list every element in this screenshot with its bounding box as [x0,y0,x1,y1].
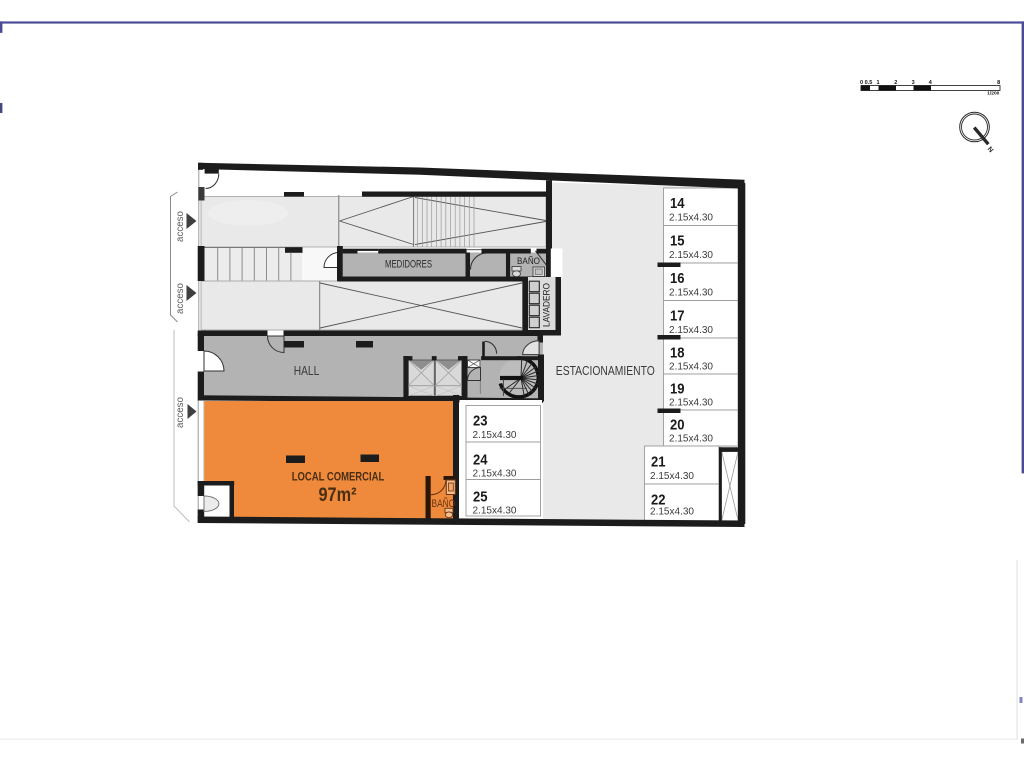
svg-text:2.15x4.30: 2.15x4.30 [669,398,713,409]
svg-text:HALL: HALL [294,364,320,378]
svg-text:LOCAL COMERCIAL: LOCAL COMERCIAL [292,470,385,484]
svg-text:2.15x4.30: 2.15x4.30 [669,362,713,373]
svg-text:17: 17 [670,308,685,325]
svg-text:3: 3 [912,80,915,86]
svg-text:0: 0 [860,80,863,86]
svg-text:8: 8 [997,80,1000,86]
svg-text:19: 19 [670,381,685,398]
svg-text:97m²: 97m² [319,485,357,506]
svg-text:2: 2 [894,80,897,86]
svg-text:16: 16 [670,270,685,287]
svg-text:2.15x4.30: 2.15x4.30 [669,213,713,224]
svg-text:2.15x4.30: 2.15x4.30 [473,506,517,517]
svg-text:20: 20 [670,417,685,434]
svg-text:2.15x4.30: 2.15x4.30 [669,325,713,336]
svg-text:0.5: 0.5 [865,80,873,86]
svg-text:ESTACIONAMIENTO: ESTACIONAMIENTO [556,364,655,378]
svg-text:18: 18 [670,345,685,362]
svg-text:2.15x4.30: 2.15x4.30 [669,288,713,299]
svg-text:acceso: acceso [174,397,186,428]
svg-text:2.15x4.30: 2.15x4.30 [650,471,694,482]
svg-text:14: 14 [670,195,685,212]
svg-text:21: 21 [651,454,666,471]
svg-text:BAÑO: BAÑO [517,256,540,266]
svg-text:2.15x4.30: 2.15x4.30 [650,507,694,518]
svg-text:2.15x4.30: 2.15x4.30 [473,430,517,441]
svg-text:25: 25 [473,489,488,506]
svg-text:2.15x4.30: 2.15x4.30 [473,469,517,480]
svg-text:1/200: 1/200 [987,91,999,97]
svg-text:2.15x4.30: 2.15x4.30 [669,434,713,445]
svg-text:23: 23 [473,413,488,430]
svg-text:acceso: acceso [174,211,186,242]
svg-text:15: 15 [670,233,685,250]
svg-text:2.15x4.30: 2.15x4.30 [669,250,713,261]
svg-text:acceso: acceso [174,283,186,314]
svg-text:1: 1 [876,80,879,86]
svg-text:LAVADERO: LAVADERO [542,283,553,327]
svg-text:MEDIDORES: MEDIDORES [385,258,432,270]
svg-text:24: 24 [473,452,488,469]
